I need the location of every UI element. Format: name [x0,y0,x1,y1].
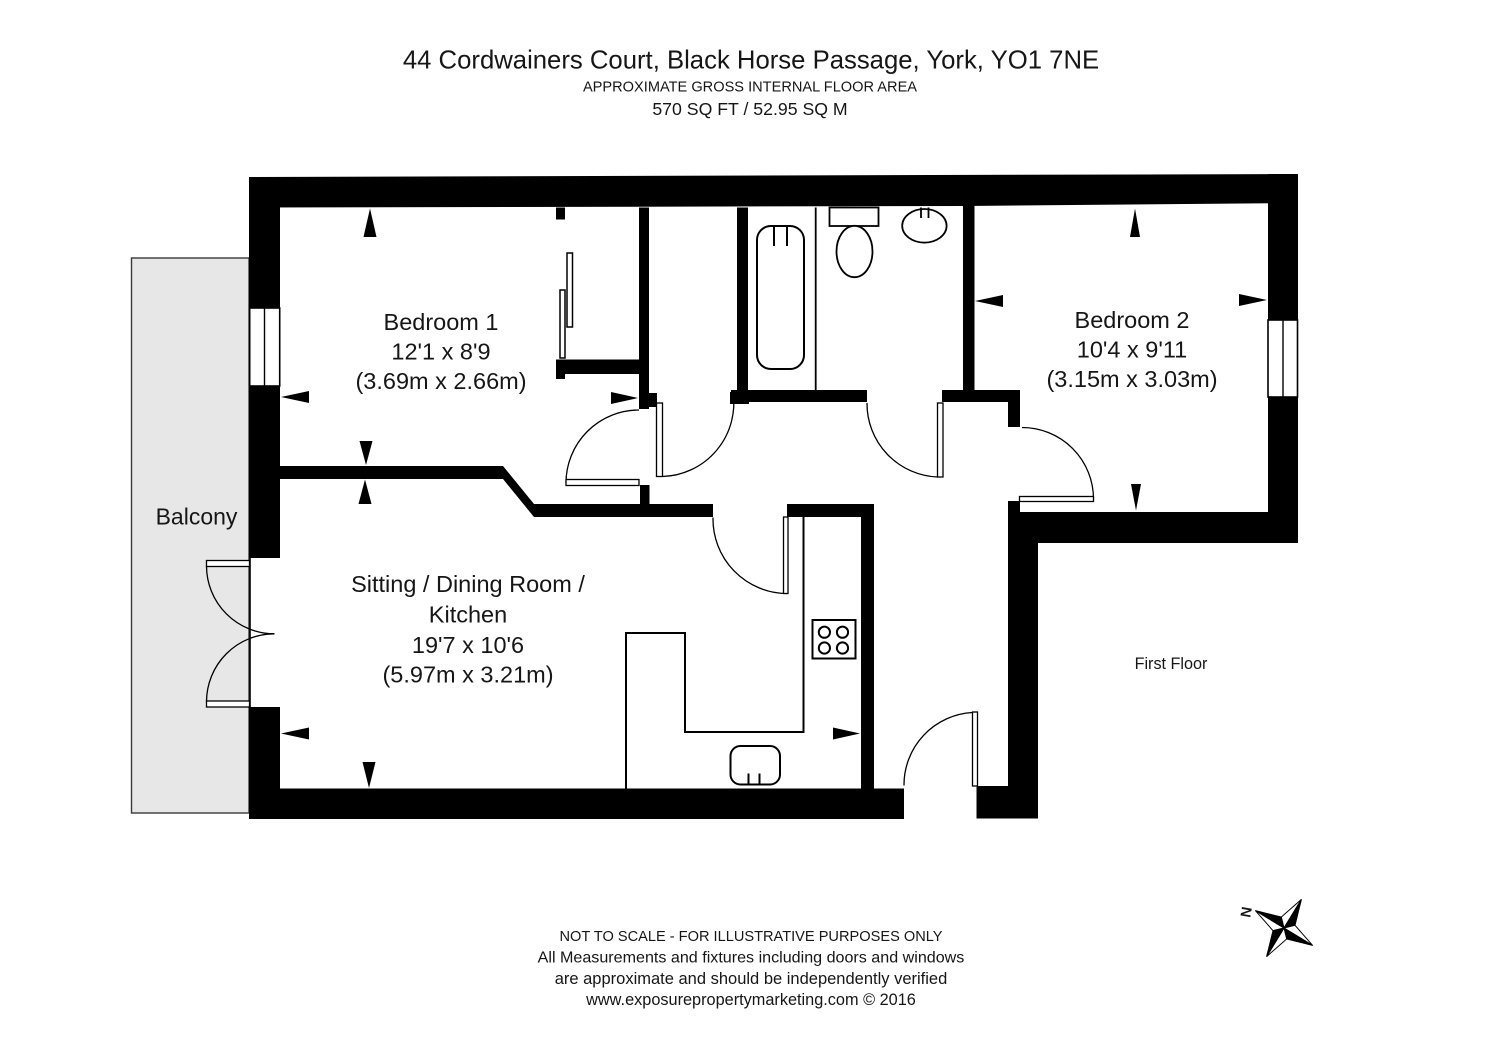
svg-text:APPROXIMATE GROSS INTERNAL FLO: APPROXIMATE GROSS INTERNAL FLOOR AREA [583,80,917,96]
svg-text:12'1 x 8'9: 12'1 x 8'9 [391,339,490,365]
svg-text:Sitting / Dining Room /: Sitting / Dining Room / [351,571,585,597]
svg-text:570 SQ FT / 52.95 SQ M: 570 SQ FT / 52.95 SQ M [652,99,847,119]
svg-text:(3.69m x 2.66m): (3.69m x 2.66m) [355,368,526,394]
svg-text:www.exposurepropertymarketing.: www.exposurepropertymarketing.com © 2016 [585,991,916,1009]
svg-text:First Floor: First Floor [1135,655,1208,673]
svg-text:19'7 x 10'6: 19'7 x 10'6 [412,632,524,658]
svg-text:Bedroom 1: Bedroom 1 [384,309,499,335]
svg-text:(3.15m x 3.03m): (3.15m x 3.03m) [1046,366,1217,392]
svg-text:10'4 x 9'11: 10'4 x 9'11 [1077,337,1187,363]
svg-text:44 Cordwainers Court, Black Ho: 44 Cordwainers Court, Black Horse Passag… [403,47,1099,75]
svg-text:Bedroom 2: Bedroom 2 [1075,307,1190,333]
svg-text:(5.97m x 3.21m): (5.97m x 3.21m) [382,662,553,688]
svg-text:are approximate and should be: are approximate and should be independen… [555,970,948,988]
svg-text:Kitchen: Kitchen [429,602,507,628]
svg-text:All Measurements and fixtures: All Measurements and fixtures including … [538,949,965,967]
svg-text:Balcony: Balcony [156,504,238,530]
svg-text:NOT TO SCALE - FOR ILLUSTRATIV: NOT TO SCALE - FOR ILLUSTRATIVE PURPOSES… [559,929,942,945]
